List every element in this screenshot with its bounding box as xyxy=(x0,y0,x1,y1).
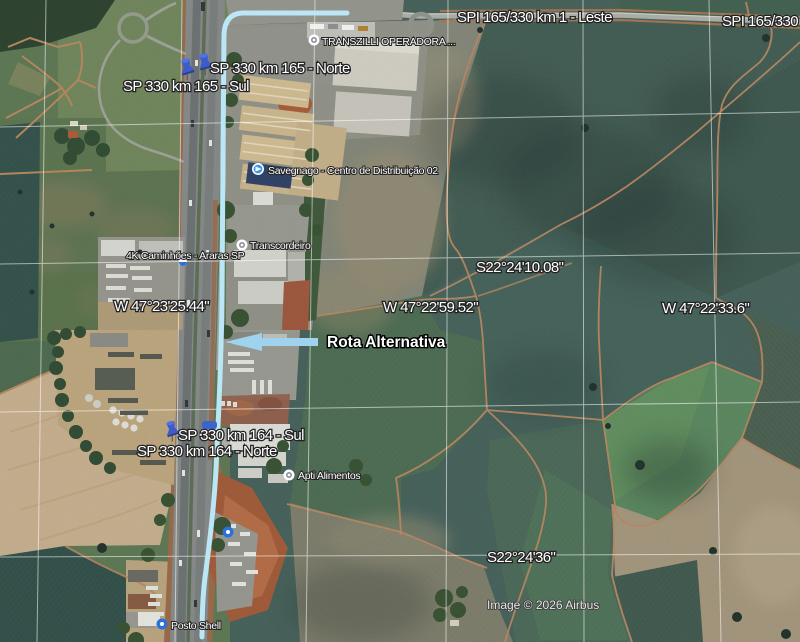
svg-text:W 47°22'59.52": W 47°22'59.52" xyxy=(383,299,478,316)
svg-text:W 47°22'33.6": W 47°22'33.6" xyxy=(662,300,750,317)
svg-text:SPI 165/330: SPI 165/330 xyxy=(722,13,798,30)
svg-text:SPI 165/330 km 1 - Leste: SPI 165/330 km 1 - Leste xyxy=(457,9,612,26)
svg-text:TRANSZILLI OPERADORA ...: TRANSZILLI OPERADORA ... xyxy=(322,36,455,48)
svg-text:S22°24'36": S22°24'36" xyxy=(487,549,556,566)
svg-text:Savegnago - Centro de Distribu: Savegnago - Centro de Distribuição 02 xyxy=(268,165,438,177)
svg-text:Transcordeiro: Transcordeiro xyxy=(250,240,311,252)
svg-text:Image © 2026 Airbus: Image © 2026 Airbus xyxy=(487,598,599,612)
svg-text:W 47°23'25.44": W 47°23'25.44" xyxy=(114,298,209,315)
svg-text:SP 330 km 164 - Norte: SP 330 km 164 - Norte xyxy=(137,443,277,460)
svg-text:SP 330 km 165 - Norte: SP 330 km 165 - Norte xyxy=(210,60,350,77)
svg-text:S22°24'10.08": S22°24'10.08" xyxy=(476,259,564,276)
svg-text:Posto Shell: Posto Shell xyxy=(171,620,221,632)
svg-text:Rota Alternativa: Rota Alternativa xyxy=(327,334,446,351)
svg-text:SP 330 km 164 - Sul: SP 330 km 164 - Sul xyxy=(178,427,304,444)
svg-text:SP 330 km 165 - Sul: SP 330 km 165 - Sul xyxy=(123,78,249,95)
svg-text:Apti Alimentos: Apti Alimentos xyxy=(298,470,360,482)
svg-text:4K Caminhões - Araras SP: 4K Caminhões - Araras SP xyxy=(126,250,245,262)
